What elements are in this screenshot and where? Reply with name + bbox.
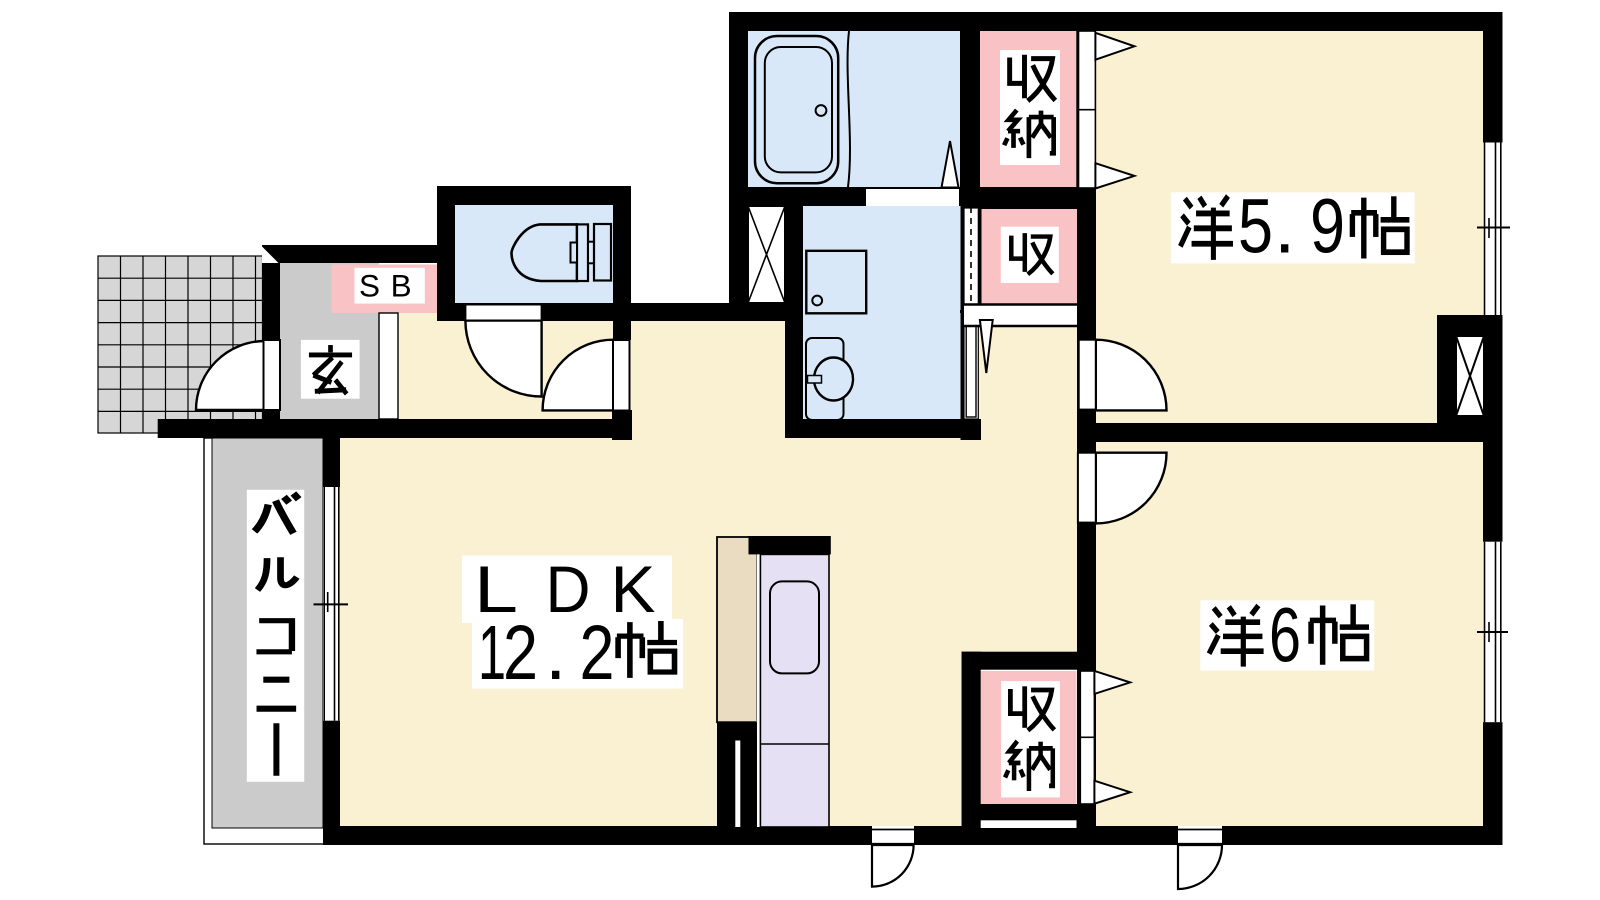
svg-text:.: . bbox=[545, 610, 566, 696]
svg-text:K: K bbox=[611, 552, 656, 626]
svg-text:2: 2 bbox=[580, 610, 615, 696]
svg-text:.: . bbox=[1274, 184, 1295, 270]
svg-text:6: 6 bbox=[1269, 592, 1301, 678]
svg-text:S: S bbox=[359, 267, 380, 303]
svg-text:9: 9 bbox=[1310, 184, 1345, 270]
svg-text:B: B bbox=[391, 267, 412, 303]
svg-text:2: 2 bbox=[503, 610, 538, 696]
svg-text:5: 5 bbox=[1238, 184, 1273, 270]
svg-text:1: 1 bbox=[478, 610, 506, 696]
